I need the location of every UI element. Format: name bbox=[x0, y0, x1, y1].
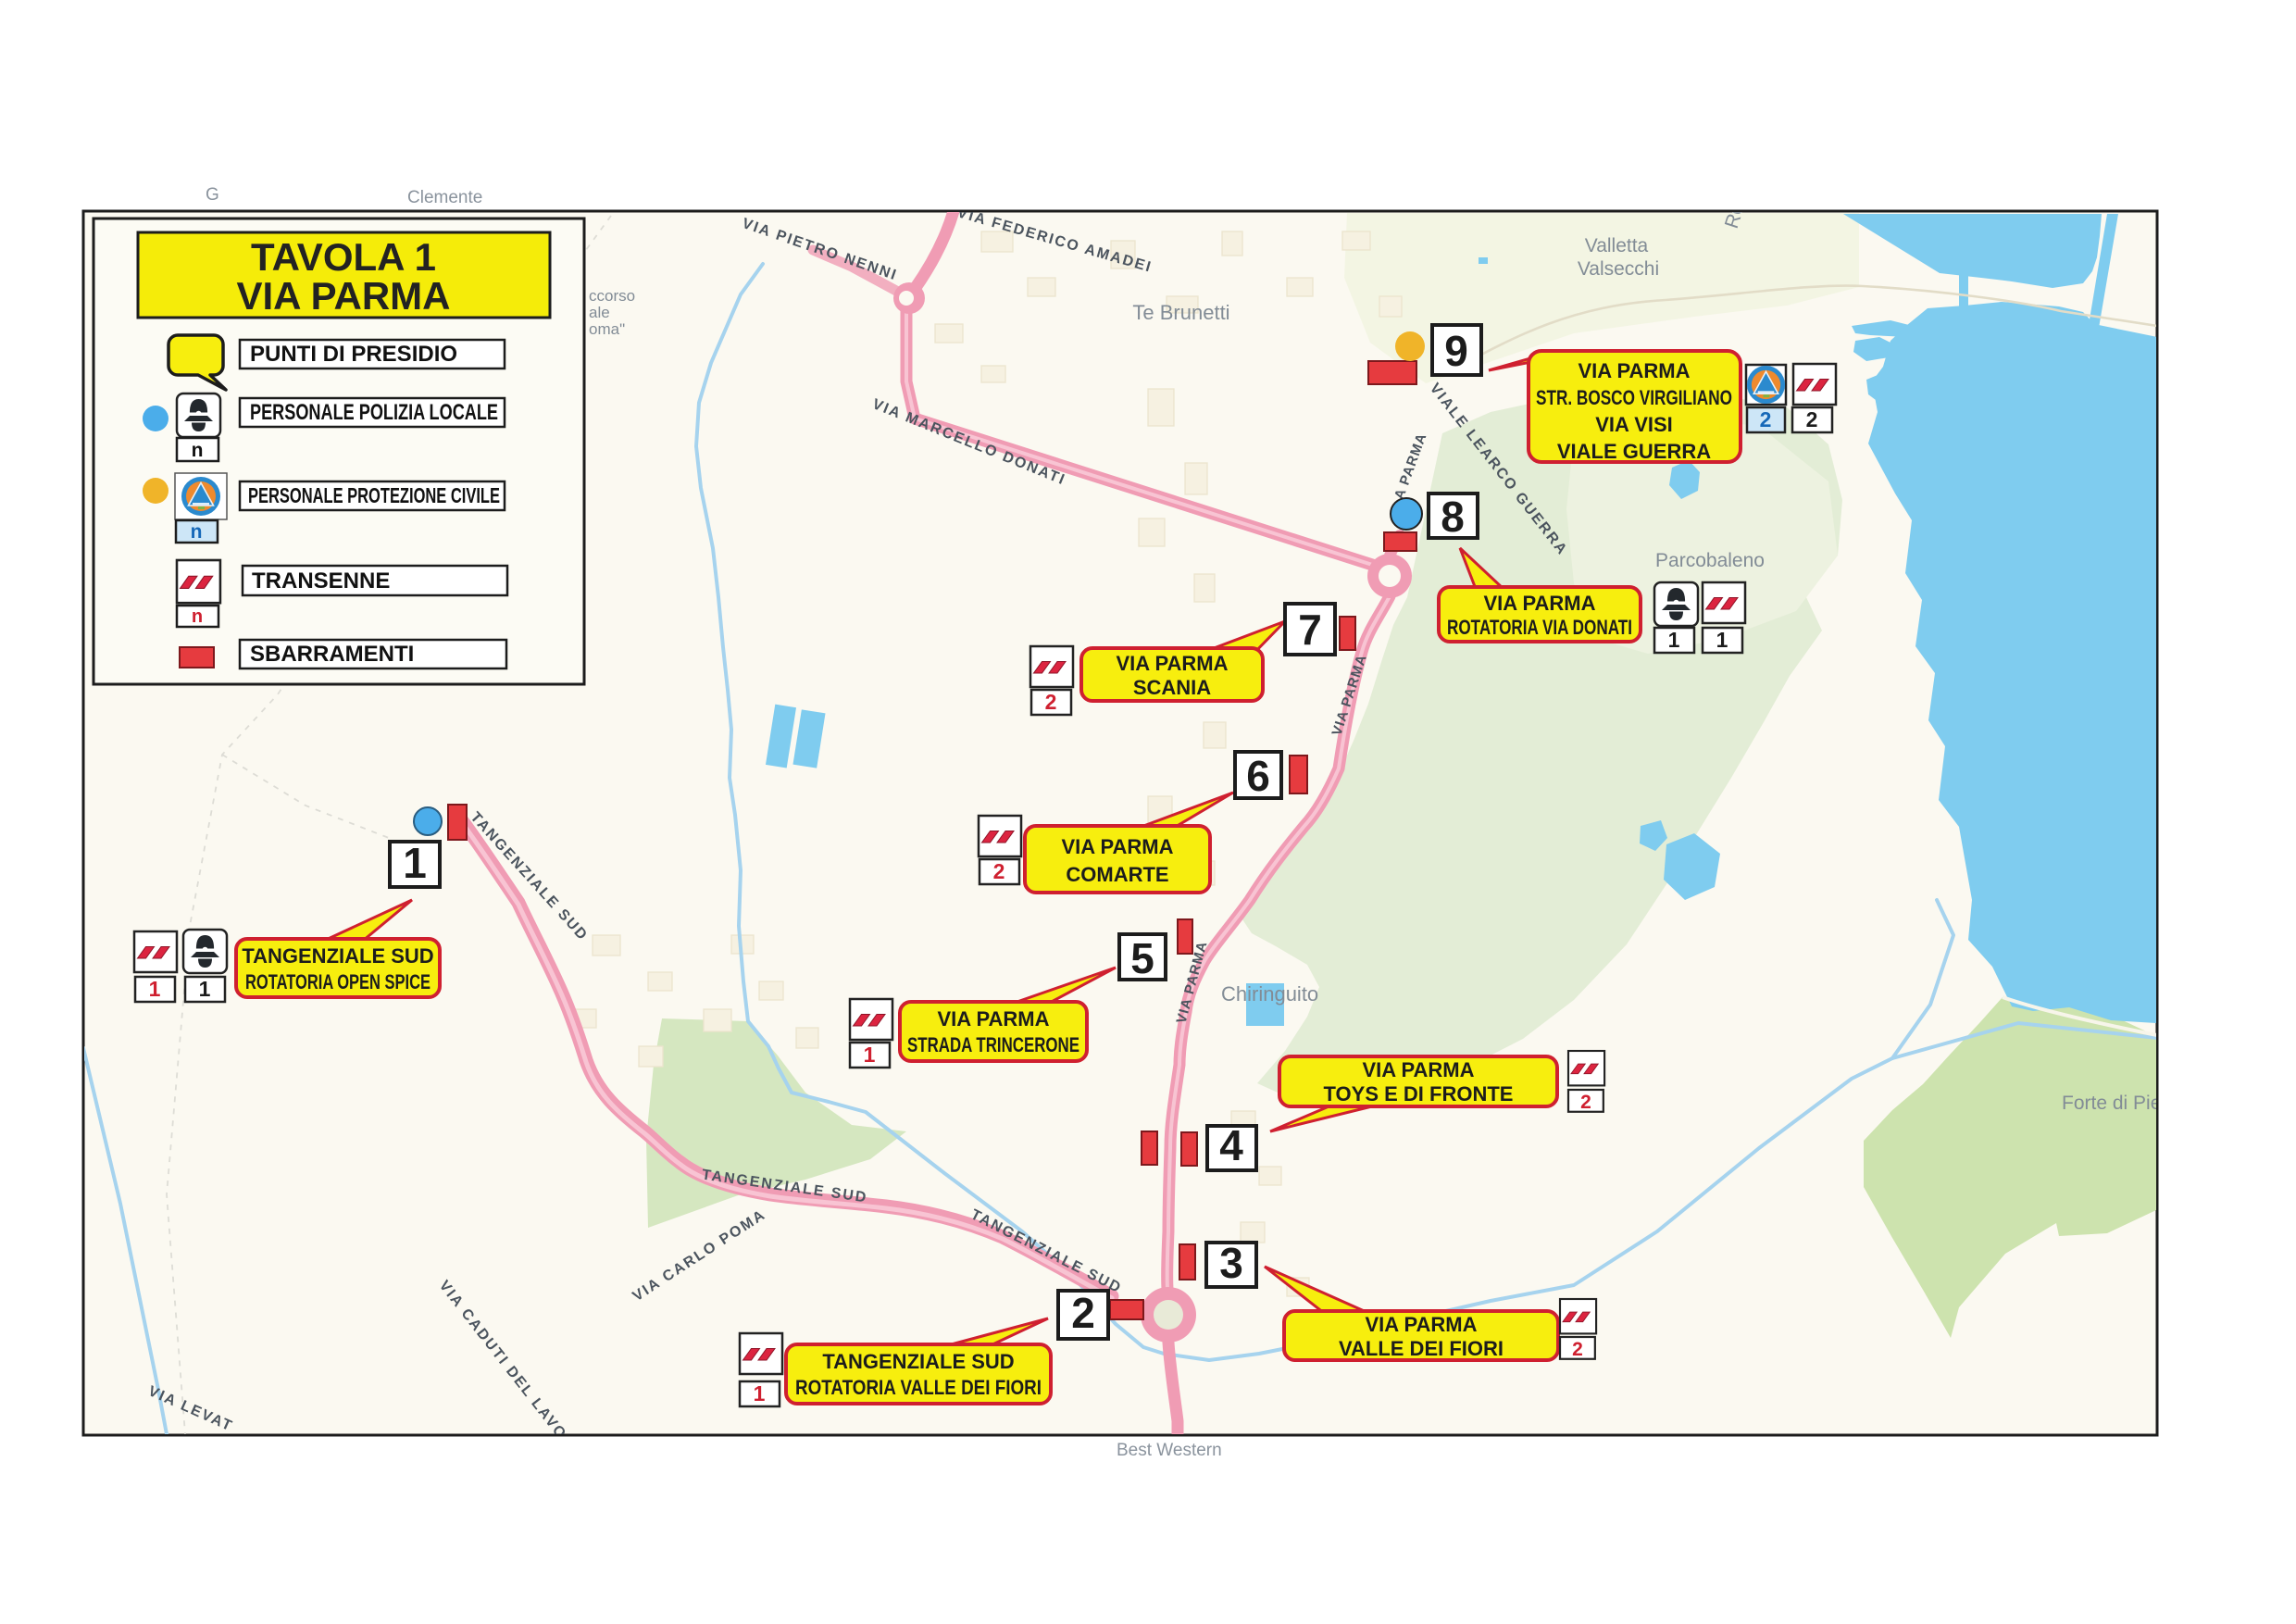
svg-text:1: 1 bbox=[149, 977, 161, 1001]
svg-text:G: G bbox=[206, 185, 219, 205]
svg-text:2: 2 bbox=[1760, 407, 1772, 431]
svg-text:VIA PARMA: VIA PARMA bbox=[1578, 359, 1691, 382]
svg-text:TANGENZIALE SUD: TANGENZIALE SUD bbox=[822, 1350, 1014, 1373]
svg-text:Forte di Pieto: Forte di Pieto bbox=[2062, 1093, 2177, 1114]
svg-text:Chiringuito: Chiringuito bbox=[1221, 982, 1318, 1006]
svg-text:VIA VISI: VIA VISI bbox=[1595, 413, 1673, 436]
svg-text:Te Brunetti: Te Brunetti bbox=[1132, 301, 1229, 324]
svg-text:Valsecchi: Valsecchi bbox=[1578, 258, 1659, 280]
svg-text:4: 4 bbox=[1219, 1121, 1243, 1169]
svg-text:6: 6 bbox=[1246, 752, 1270, 800]
svg-text:5: 5 bbox=[1130, 934, 1154, 982]
svg-text:7: 7 bbox=[1298, 606, 1322, 654]
svg-text:ale: ale bbox=[589, 304, 610, 321]
svg-text:TOYS E DI FRONTE: TOYS E DI FRONTE bbox=[1324, 1082, 1514, 1106]
svg-text:n: n bbox=[192, 606, 203, 627]
svg-text:TRANSENNE: TRANSENNE bbox=[252, 568, 390, 593]
svg-text:3: 3 bbox=[1219, 1239, 1243, 1287]
svg-text:1: 1 bbox=[199, 977, 211, 1001]
svg-text:n: n bbox=[191, 521, 203, 543]
svg-text:VIA PARMA: VIA PARMA bbox=[237, 274, 451, 318]
svg-text:2: 2 bbox=[1071, 1289, 1095, 1337]
svg-text:COMARTE: COMARTE bbox=[1066, 863, 1168, 886]
svg-text:2: 2 bbox=[1580, 1092, 1591, 1113]
svg-text:Clemente: Clemente bbox=[407, 188, 482, 207]
svg-text:PERSONALE PROTEZIONE CIVILE: PERSONALE PROTEZIONE CIVILE bbox=[248, 483, 500, 507]
svg-text:VIA PARMA: VIA PARMA bbox=[1366, 1313, 1478, 1336]
svg-text:ccorso: ccorso bbox=[589, 287, 635, 305]
svg-text:VIA PARMA: VIA PARMA bbox=[938, 1007, 1050, 1031]
svg-text:2: 2 bbox=[1572, 1339, 1583, 1360]
svg-text:SBARRAMENTI: SBARRAMENTI bbox=[250, 642, 414, 667]
svg-text:n: n bbox=[192, 440, 204, 461]
svg-text:9: 9 bbox=[1444, 327, 1468, 375]
svg-text:Best Western: Best Western bbox=[1117, 1441, 1222, 1460]
svg-text:PERSONALE POLIZIA LOCALE: PERSONALE POLIZIA LOCALE bbox=[250, 400, 498, 425]
svg-text:ROTATORIA VIA DONATI: ROTATORIA VIA DONATI bbox=[1447, 616, 1632, 639]
svg-text:2: 2 bbox=[993, 859, 1005, 883]
svg-text:1: 1 bbox=[864, 1043, 876, 1067]
svg-text:VIA PARMA: VIA PARMA bbox=[1062, 835, 1174, 858]
svg-text:1: 1 bbox=[1668, 628, 1680, 652]
svg-text:Valletta: Valletta bbox=[1585, 235, 1649, 256]
svg-text:1: 1 bbox=[1716, 628, 1728, 652]
svg-text:ROTATORIA OPEN SPICE: ROTATORIA OPEN SPICE bbox=[245, 970, 430, 993]
svg-text:8: 8 bbox=[1441, 493, 1465, 541]
svg-text:1: 1 bbox=[754, 1381, 766, 1405]
svg-text:2: 2 bbox=[1045, 690, 1057, 714]
svg-text:2: 2 bbox=[1806, 407, 1818, 431]
svg-text:VIA PARMA: VIA PARMA bbox=[1484, 592, 1596, 615]
svg-text:VIA PARMA: VIA PARMA bbox=[1363, 1058, 1475, 1081]
svg-text:ROTATORIA VALLE DEI FIORI: ROTATORIA VALLE DEI FIORI bbox=[795, 1376, 1042, 1399]
svg-text:1: 1 bbox=[403, 839, 427, 887]
svg-text:VIA PARMA: VIA PARMA bbox=[1117, 652, 1229, 675]
svg-text:TAVOLA 1: TAVOLA 1 bbox=[251, 235, 436, 279]
svg-text:VIALE GUERRA: VIALE GUERRA bbox=[1557, 440, 1711, 463]
svg-text:VALLE DEI FIORI: VALLE DEI FIORI bbox=[1339, 1337, 1504, 1360]
svg-text:oma": oma" bbox=[589, 320, 625, 338]
svg-text:STRADA TRINCERONE: STRADA TRINCERONE bbox=[907, 1033, 1079, 1056]
svg-text:TANGENZIALE SUD: TANGENZIALE SUD bbox=[242, 944, 433, 968]
svg-text:Parcobaleno: Parcobaleno bbox=[1655, 550, 1765, 571]
svg-text:STR. BOSCO VIRGILIANO: STR. BOSCO VIRGILIANO bbox=[1536, 386, 1732, 409]
svg-text:SCANIA: SCANIA bbox=[1133, 676, 1211, 699]
svg-text:PUNTI DI PRESIDIO: PUNTI DI PRESIDIO bbox=[250, 342, 457, 367]
